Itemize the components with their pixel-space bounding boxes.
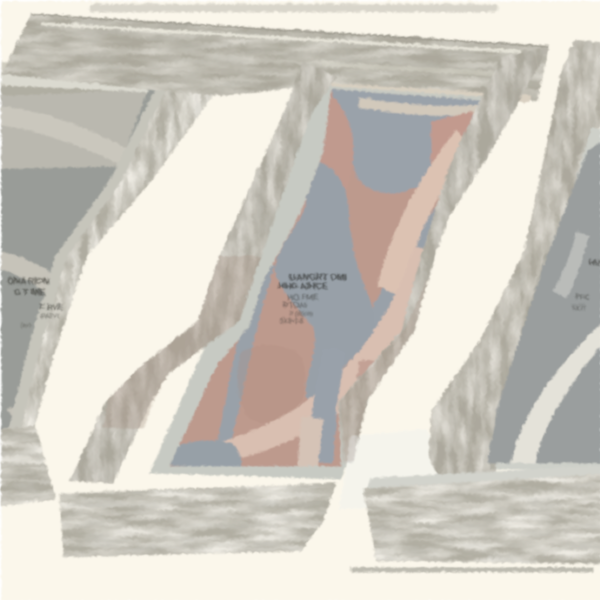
svg-text:G T IME: G T IME <box>13 286 45 296</box>
svg-text:(xv): (xv) <box>19 321 30 328</box>
svg-text:5X3v18: 5X3v18 <box>278 317 302 324</box>
svg-text:PTOAI: PTOAI <box>282 300 306 309</box>
svg-text:HU: HU <box>588 257 599 266</box>
svg-text:5X7l: 5X7l <box>570 304 584 311</box>
svg-text:PAIVI: PAIVI <box>39 310 58 319</box>
svg-text:PFC: PFC <box>574 291 590 300</box>
svg-text:7 (8(cm: 7 (8(cm <box>288 310 312 317</box>
svg-text:ONA RION: ONA RION <box>6 275 48 285</box>
svg-text:HHG AIHCE: HHG AIHCE <box>277 280 326 291</box>
